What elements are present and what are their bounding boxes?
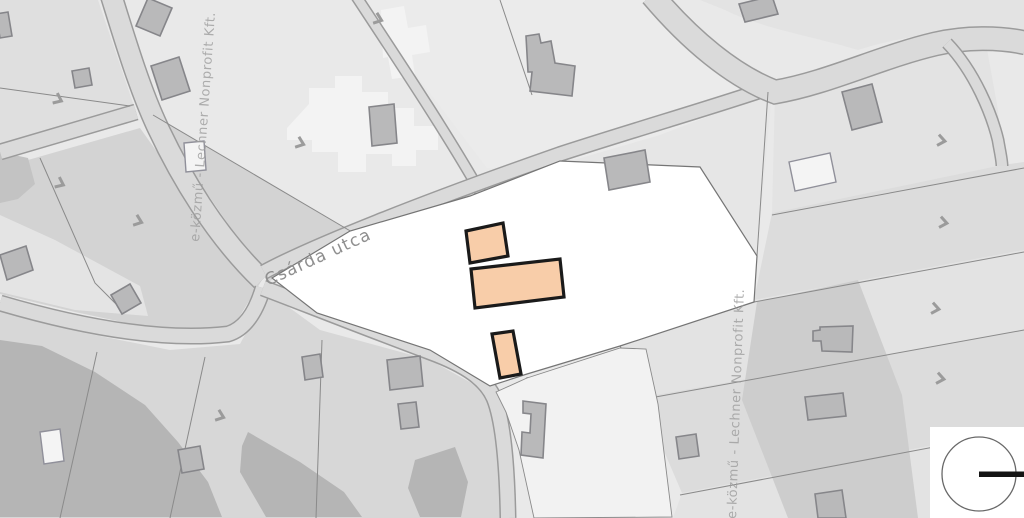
building — [398, 402, 419, 429]
building — [387, 356, 423, 390]
building — [178, 446, 204, 473]
highlighted-building[interactable] — [466, 223, 508, 263]
building — [676, 434, 699, 459]
building — [369, 104, 397, 146]
building — [72, 68, 92, 88]
compass-widget[interactable] — [930, 427, 1024, 518]
building — [40, 429, 64, 464]
map-viewport[interactable]: Csárda utca e-közmű - Lechner Nonprofit … — [0, 0, 1024, 518]
building — [604, 150, 650, 190]
building — [805, 393, 846, 420]
compass-needle-icon — [979, 472, 1024, 478]
building — [302, 354, 323, 380]
map-canvas[interactable]: Csárda utca e-közmű - Lechner Nonprofit … — [0, 0, 1024, 518]
building — [815, 490, 846, 518]
